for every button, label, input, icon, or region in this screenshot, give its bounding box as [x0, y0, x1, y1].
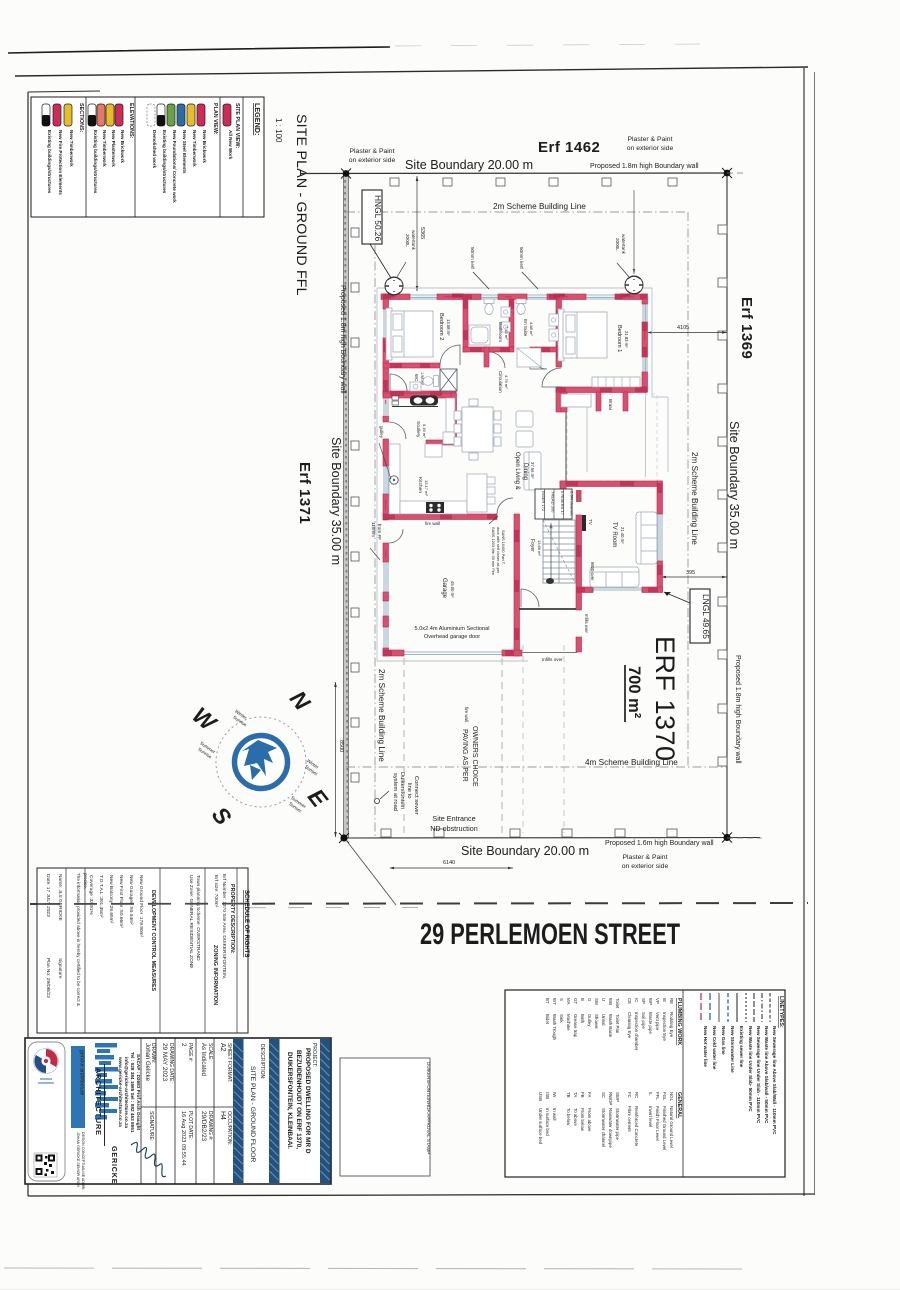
- svg-text:Johan Gelicke: Johan Gelicke: [144, 1043, 150, 1082]
- svg-text:PAVING AS PER: PAVING AS PER: [461, 729, 468, 782]
- svg-text:Scullery: Scullery: [416, 421, 421, 438]
- svg-text:37.56 m²: 37.56 m²: [530, 462, 535, 479]
- svg-text:LNGL 49.65: LNGL 49.65: [701, 594, 711, 639]
- svg-text:Urinal: Urinal: [601, 1014, 606, 1025]
- svg-text:FGL: FGL: [662, 1092, 667, 1101]
- svg-text:Proposed 1.8m high Boundary wa: Proposed 1.8m high Boundary wall: [590, 163, 699, 170]
- svg-text:2: 2: [180, 1043, 187, 1047]
- svg-text:ND obstruction: ND obstruction: [430, 824, 478, 833]
- svg-text:Tel : 028 384 1685 Sel : 082: Tel : 028 384 1685 Sel : 082 453 8551: [130, 1052, 135, 1133]
- svg-text:Plan No: 29/DB/23: Plan No: 29/DB/23: [45, 958, 51, 998]
- svg-text:Finished Ground Level: Finished Ground Level: [662, 1106, 667, 1150]
- svg-text:on exterior side: on exterior side: [622, 863, 669, 870]
- svg-text:Sink: Sink: [559, 1014, 564, 1023]
- svg-text:Rainwater downpipe: Rainwater downpipe: [608, 1108, 613, 1148]
- svg-text:PLAN VIEW:: PLAN VIEW:: [212, 103, 218, 135]
- svg-text:ELEVATIONS:: ELEVATIONS:: [128, 103, 134, 139]
- svg-text:PROPERTY DESCRIPTION:: PROPERTY DESCRIPTION:: [229, 884, 235, 954]
- svg-text:BEZUIDENHOUDT ON ERF 1370,: BEZUIDENHOUDT ON ERF 1370,: [295, 1050, 302, 1149]
- svg-text:New Cold water line: New Cold water line: [712, 1026, 717, 1070]
- svg-text:Name: JLS GERICKE: Name: JLS GERICKE: [57, 874, 63, 921]
- svg-text:Stormwater channel: Stormwater channel: [601, 1108, 606, 1147]
- svg-text:RWDP: RWDP: [608, 1092, 613, 1105]
- svg-text:Waste pipe: Waste pipe: [648, 1012, 653, 1034]
- svg-text:system at road: system at road: [392, 773, 398, 811]
- svg-text:8500: 8500: [338, 740, 344, 752]
- svg-text:BT: BT: [545, 998, 550, 1004]
- svg-text:New Sewerage line Under Slab -: New Sewerage line Under Slab - 110mm PVC: [756, 1026, 761, 1124]
- svg-text:New Plasterwork: New Plasterwork: [111, 130, 116, 167]
- svg-text:DUIKERSFONTEIN, KLEINBAAI.: DUIKERSFONTEIN, KLEINBAAI.: [286, 1052, 293, 1149]
- svg-text:TV Room: TV Room: [611, 522, 617, 547]
- svg-text:Site Boundary 20.00 m: Site Boundary 20.00 m: [405, 158, 533, 172]
- svg-text:Plaster & Paint: Plaster & Paint: [350, 148, 395, 155]
- svg-text:From above: From above: [587, 1108, 592, 1132]
- svg-text:New Fire Protection Elements: New Fire Protection Elements: [58, 130, 63, 195]
- svg-text:G: G: [587, 998, 592, 1002]
- svg-text:Kitchen: Kitchen: [417, 477, 423, 493]
- svg-text:TA: TA: [573, 1092, 578, 1097]
- svg-text:4105: 4105: [677, 325, 689, 331]
- svg-text:SANS 10400 Part T.: SANS 10400 Part T.: [501, 530, 506, 565]
- svg-text:Infills over: Infills over: [542, 657, 563, 662]
- svg-text:LINETYPES:: LINETYPES:: [778, 996, 784, 1028]
- svg-text:Existing buildings/structures: Existing buildings/structures: [93, 130, 98, 194]
- svg-text:Plaster & Paint: Plaster & Paint: [623, 854, 668, 861]
- svg-text:45.00 m²: 45.00 m²: [450, 581, 455, 598]
- svg-text:SECTIONS:: SECTIONS:: [78, 103, 84, 133]
- svg-text:Toilet Pan: Toilet Pan: [615, 1014, 620, 1034]
- svg-text:Grease trap: Grease trap: [573, 1014, 578, 1038]
- svg-text:4.79 m²: 4.79 m²: [504, 375, 509, 389]
- svg-text:To above: To above: [573, 1108, 578, 1126]
- svg-text:16 Aug 2023 09:55:44: 16 Aug 2023 09:55:44: [180, 1111, 186, 1166]
- svg-text:MA: MA: [566, 998, 571, 1005]
- svg-text:on exterior side: on exterior side: [349, 157, 396, 164]
- svg-text:B: B: [580, 998, 585, 1001]
- svg-text:13.58 m²: 13.58 m²: [446, 319, 451, 336]
- svg-text:New First Floor: New First Floor :50.66m²: [118, 875, 124, 928]
- svg-text:Date: 17 JULY 2023: Date: 17 JULY 2023: [45, 874, 51, 917]
- svg-text:50mm kerf: 50mm kerf: [470, 247, 475, 269]
- svg-text:New Foundations/ Concrete work: New Foundations/ Concrete work: [172, 130, 177, 203]
- svg-text:The information provided above: The information provided above is hereby…: [76, 873, 81, 1006]
- svg-text:Infills over: Infills over: [584, 614, 589, 633]
- svg-text:395: 395: [686, 570, 695, 576]
- svg-text:In wall: In wall: [552, 1108, 557, 1120]
- svg-text:New Waste line Above Slab/wall: New Waste line Above Slab/wall - 50mm PV…: [764, 1026, 769, 1124]
- svg-text:ISB: ISB: [545, 1092, 550, 1099]
- svg-text:Bedroom 2: Bedroom 2: [438, 313, 444, 340]
- svg-text:GT: GT: [573, 998, 578, 1004]
- svg-text:Stormwater pipe: Stormwater pipe: [615, 1108, 620, 1141]
- svg-text:CE: CE: [627, 998, 632, 1004]
- svg-text:Existing sewer line: Existing sewer line: [739, 1026, 744, 1068]
- svg-text:E: E: [303, 784, 333, 813]
- svg-text:ARCHITECTURE: ARCHITECTURE: [94, 1068, 103, 1136]
- svg-text:Existing buildings/structures: Existing buildings/structures: [47, 130, 52, 194]
- svg-text:Shower: Shower: [594, 1014, 599, 1029]
- svg-text:PROPOSED DWELLING FOR MR D: PROPOSED DWELLING FOR MR D: [304, 1048, 311, 1154]
- svg-text:SP: SP: [641, 998, 646, 1004]
- svg-text:DEVELOPMENT CONTROL MEASURES: DEVELOPMENT CONTROL MEASURES: [150, 890, 156, 992]
- svg-text:line to: line to: [406, 783, 412, 798]
- svg-text:RISER 172: RISER 172: [541, 491, 546, 512]
- svg-text:Erf size: 700m²: Erf size: 700m²: [213, 875, 219, 908]
- svg-text:Erf 1371: Erf 1371: [296, 462, 313, 524]
- svg-text:Fibre cement: Fibre cement: [627, 1106, 632, 1132]
- svg-text:Dining: Dining: [522, 463, 528, 480]
- svg-text:precise.: precise.: [83, 873, 88, 889]
- svg-text:SIGNATURE:: SIGNATURE:: [148, 1111, 154, 1141]
- svg-text:NGL: NGL: [669, 1092, 674, 1102]
- svg-text:Wash Basin: Wash Basin: [608, 1014, 613, 1038]
- svg-text:www.gericke-architecture.co.za: www.gericke-architecture.co.za: [118, 1056, 123, 1127]
- svg-text:700 m²: 700 m²: [625, 666, 643, 719]
- svg-text:WB: WB: [608, 998, 613, 1005]
- svg-text:Town planning Scheme: OVERS: Town planning Scheme: OVERSTRAND: [195, 875, 201, 961]
- svg-text:Bathroom: Bathroom: [498, 322, 503, 342]
- svg-text:2m Scheme Building Line: 2m Scheme Building Line: [690, 452, 699, 545]
- svg-text:Inspection Eye: Inspection Eye: [662, 1012, 667, 1041]
- svg-text:Soil pipe: Soil pipe: [641, 1012, 646, 1029]
- svg-text:9500 over: 9500 over: [590, 562, 595, 581]
- svg-text:SITE PLAN VIEW:: SITE PLAN VIEW:: [234, 103, 240, 148]
- svg-text:Under surface bed: Under surface bed: [538, 1108, 543, 1145]
- svg-text:N: N: [285, 686, 316, 715]
- svg-text:SITE PLAN - GROUND FFL: SITE PLAN - GROUND FFL: [293, 114, 309, 296]
- svg-text:New Garages: New Garages :50.04m²: [128, 875, 134, 925]
- svg-text:S: S: [559, 998, 564, 1001]
- svg-text:Bedroom 1: Bedroom 1: [616, 325, 622, 352]
- svg-text:4.88 m²: 4.88 m²: [529, 322, 534, 336]
- svg-text:110mm: 110mm: [371, 522, 376, 537]
- svg-text:HNGL 50.26: HNGL 50.26: [373, 195, 383, 242]
- svg-text:Natural Ground Level: Natural Ground Level: [669, 1106, 674, 1148]
- svg-text:2000L: 2000L: [615, 238, 620, 251]
- svg-text:Inspection chamber: Inspection chamber: [634, 1012, 639, 1051]
- svg-text:21.83 m²: 21.83 m²: [624, 331, 629, 348]
- svg-text:New Brickwork: New Brickwork: [202, 130, 207, 163]
- svg-text:GENERAL: GENERAL: [676, 1092, 682, 1119]
- svg-text:W: W: [188, 702, 223, 737]
- svg-text:Open Living &: Open Living &: [514, 452, 520, 490]
- svg-text:Foyer: Foyer: [529, 539, 535, 552]
- svg-text:Gulley: Gulley: [587, 1014, 592, 1027]
- svg-text:New Timberwork: New Timberwork: [192, 130, 197, 167]
- svg-text:New Steel Elements: New Steel Elements: [182, 130, 187, 174]
- svg-text:TB: TB: [566, 1092, 571, 1098]
- svg-text:Use Zone: GENERAL RESIDENTIAL: Use Zone: GENERAL RESIDENTIAL ZONE: [188, 875, 194, 968]
- svg-text:TV: TV: [588, 519, 593, 526]
- svg-text:WP: WP: [648, 998, 653, 1005]
- svg-text:RE: RE: [669, 998, 674, 1004]
- svg-text:New Gas line: New Gas line: [721, 1026, 726, 1055]
- svg-text:from FF: from FF: [377, 524, 382, 540]
- svg-text:29 MAY 2023: 29 MAY 2023: [161, 1043, 168, 1082]
- svg-text:IC: IC: [634, 998, 639, 1002]
- svg-text:New Brickwork: New Brickwork: [120, 130, 125, 163]
- svg-text:New Stormwater Line: New Stormwater Line: [730, 1026, 735, 1073]
- svg-text:FB: FB: [580, 1092, 585, 1098]
- svg-text:Proposed 1.8m high Boundary wa: Proposed 1.8m high Boundary wall: [734, 655, 741, 764]
- svg-text:6140: 6140: [443, 860, 455, 866]
- svg-text:50mm kerf: 50mm kerf: [519, 247, 524, 269]
- svg-text:SITE PLAN - GROUND FLOOR: SITE PLAN - GROUND FLOOR: [249, 1066, 256, 1162]
- svg-text:info@gericke-architecture.co.z: info@gericke-architecture.co.za: [124, 1057, 129, 1128]
- svg-text:Erf Number: 1370 Site Area:: Erf Number: 1370 Site Area: DUIKERSFONTE…: [221, 874, 227, 979]
- svg-text:H4: H4: [219, 1111, 226, 1120]
- svg-text:Demolished work: Demolished work: [152, 130, 157, 168]
- svg-text:DESCRIPTION:: DESCRIPTION:: [259, 1044, 265, 1080]
- svg-text:1 : 100: 1 : 100: [274, 118, 283, 143]
- svg-text:WT: WT: [552, 998, 557, 1005]
- svg-text:2000L: 2000L: [405, 234, 410, 247]
- svg-text:New Sewerage line Above Slab/W: New Sewerage line Above Slab/Wall - 110m…: [772, 1026, 777, 1135]
- svg-text:DESIGN CONCEPTUALISE ADMIN: DESIGN CONCEPTUALISE ADMIN: [81, 1132, 85, 1190]
- svg-text:Toilet: Toilet: [615, 998, 620, 1009]
- svg-text:JOHAN GERICKE SENIOR ARCH: JOHAN GERICKE SENIOR ARCH: [76, 1132, 80, 1188]
- svg-text:Garage: Garage: [441, 578, 447, 599]
- svg-text:SABS 1203 Min 30 min Fire: SABS 1203 Min 30 min Fire: [491, 527, 496, 575]
- svg-text:VP: VP: [655, 998, 660, 1004]
- svg-text:Bidet: Bidet: [545, 1014, 550, 1025]
- svg-text:DUIKERSFONTEINHOA APPROVAL STA: DUIKERSFONTEINHOA APPROVAL STAMP: [426, 1062, 431, 1154]
- svg-text:SW: SW: [594, 998, 599, 1006]
- svg-text:1.98 m²: 1.98 m²: [420, 372, 424, 386]
- svg-text:Site Boundary 35.00 m: Site Boundary 35.00 m: [329, 437, 343, 565]
- svg-text:7.43 m²: 7.43 m²: [504, 326, 509, 340]
- svg-text:Invert level: Invert level: [648, 1106, 653, 1127]
- svg-text:SWP: SWP: [615, 1092, 620, 1102]
- svg-text:U: U: [601, 998, 606, 1001]
- svg-text:Braai: Braai: [608, 399, 613, 410]
- svg-text:Existing buildings/structures: Existing buildings/structures: [162, 130, 167, 194]
- svg-text:fire wall: fire wall: [464, 707, 469, 722]
- svg-text:gulley: gulley: [379, 426, 384, 439]
- svg-text:on exterior side: on exterior side: [627, 145, 674, 152]
- svg-text:New Hot water line: New Hot water line: [703, 1026, 708, 1067]
- svg-text:Erf 1462: Erf 1462: [538, 139, 600, 156]
- svg-text:RC: RC: [634, 1092, 639, 1098]
- svg-text:Wash Trough: Wash Trough: [552, 1014, 557, 1041]
- svg-text:Bath: Bath: [580, 1014, 585, 1024]
- svg-text:2m Scheme Building Line: 2m Scheme Building Line: [493, 202, 586, 211]
- svg-text:5.0x2.4m Aluminium Sectional: 5.0x2.4m Aluminium Sectional: [415, 626, 490, 632]
- svg-text:# RISERS 17: # RISERS 17: [560, 491, 565, 516]
- svg-text:29 PERLEMOEN STREET: 29 PERLEMOEN STREET: [420, 918, 680, 951]
- svg-text:Plaster & Paint: Plaster & Paint: [628, 136, 673, 143]
- svg-text:En Suite: En Suite: [523, 319, 528, 337]
- svg-text:5.49 m²: 5.49 m²: [422, 424, 427, 438]
- svg-text:PLUMBING WORK: PLUMBING WORK: [676, 998, 682, 1045]
- svg-text:Erf 1369: Erf 1369: [738, 297, 755, 359]
- svg-text:As Indicated: As Indicated: [200, 1043, 206, 1076]
- svg-text:Site Boundary 20.00 m: Site Boundary 20.00 m: [461, 844, 589, 858]
- svg-text:29/DB2/23: 29/DB2/23: [200, 1111, 207, 1142]
- svg-text:S: S: [207, 802, 237, 831]
- svg-text:Reinforced Concrete: Reinforced Concrete: [634, 1106, 639, 1147]
- svg-text:Cleaning Eye: Cleaning Eye: [627, 1012, 632, 1039]
- svg-text:watertank: watertank: [411, 230, 416, 251]
- svg-text:To below: To below: [566, 1108, 571, 1126]
- svg-text:Signature: Signature: [57, 958, 63, 979]
- svg-text:T.O.T.A.L: T.O.T.A.L :301.45m²: [98, 875, 104, 918]
- svg-text:From below: From below: [580, 1108, 585, 1132]
- svg-text:New Timberwork: New Timberwork: [69, 130, 74, 167]
- svg-text:All New Work: All New Work: [228, 130, 233, 160]
- svg-text:SC: SC: [601, 1092, 606, 1098]
- svg-text:2m Scheme Building Line: 2m Scheme Building Line: [377, 669, 386, 762]
- svg-text:FA: FA: [587, 1092, 592, 1097]
- svg-text:13.17 m²: 13.17 m²: [424, 480, 429, 496]
- svg-text:Rodding Eye: Rodding Eye: [669, 1012, 674, 1038]
- svg-text:5365: 5365: [419, 227, 425, 239]
- svg-text:door with self closer as per: door with self closer as per: [496, 527, 501, 574]
- svg-text:New Ground Floor :: New Ground Floor :179.90m²: [138, 875, 144, 938]
- svg-text:IL: IL: [648, 1092, 653, 1096]
- svg-text:Overhead garage door: Overhead garage door: [424, 634, 480, 640]
- svg-text:Proposed 1.8m high Boundary wa: Proposed 1.8m high Boundary wall: [339, 285, 346, 394]
- svg-text:Proposed 1.6m high Boundary wa: Proposed 1.6m high Boundary wall: [605, 840, 714, 847]
- svg-text:USB: USB: [538, 1092, 543, 1101]
- svg-text:13.66 m²: 13.66 m²: [537, 540, 542, 556]
- svg-text:SACAP : D2683 Prof Arch Draugh: SACAP : D2683 Prof Arch Draught: [136, 1054, 141, 1130]
- svg-text:LEGEND:: LEGEND:: [253, 103, 262, 135]
- svg-text:PLOT DATE:: PLOT DATE:: [187, 1111, 193, 1140]
- svg-text:GERICKE: GERICKE: [110, 1146, 119, 1184]
- svg-text:OWNERS CHOICE: OWNERS CHOICE: [471, 726, 478, 787]
- svg-text:Finish Floor Level: Finish Floor Level: [655, 1106, 660, 1141]
- svg-text:A2: A2: [219, 1043, 226, 1052]
- svg-text:gericke architecture: gericke architecture: [79, 1050, 85, 1095]
- svg-text:2.6M clearanc: 2.6M clearanc: [570, 491, 575, 516]
- svg-text:ZONING INFORMATION: ZONING INFORMATION: [212, 945, 218, 1005]
- svg-text:Site Boundary 35.00 m: Site Boundary 35.00 m: [727, 421, 741, 549]
- svg-text:WC: WC: [414, 374, 419, 381]
- svg-text:New Timberwork: New Timberwork: [102, 130, 107, 167]
- svg-text:FFL: FFL: [655, 1092, 660, 1100]
- svg-text:TREAD 300: TREAD 300: [551, 491, 556, 513]
- svg-text:Connect sewer: Connect sewer: [413, 776, 419, 815]
- svg-text:FC: FC: [627, 1092, 632, 1098]
- svg-text:Site Entrance: Site Entrance: [432, 814, 475, 823]
- svg-text:watertank: watertank: [621, 234, 626, 255]
- svg-text:SCALE:: SCALE:: [207, 1043, 213, 1061]
- svg-text:Vent pipe: Vent pipe: [655, 1012, 660, 1031]
- svg-text:IE: IE: [662, 998, 667, 1002]
- svg-text:21.40 m²: 21.40 m²: [620, 527, 625, 544]
- svg-text:IW: IW: [552, 1092, 557, 1098]
- svg-text:Circulation: Circulation: [498, 371, 503, 393]
- svg-text:New Waste line Under Slab- 50m: New Waste line Under Slab- 50mm PVC: [748, 1026, 753, 1112]
- svg-text:Machine: Machine: [566, 1014, 571, 1031]
- svg-text:New Balcony: New Balcony :26.65m²: [108, 875, 114, 924]
- svg-text:In surface bed: In surface bed: [545, 1108, 550, 1136]
- svg-text:SCHEDULE OF RIGHTS: SCHEDULE OF RIGHTS: [243, 890, 249, 957]
- svg-text:ERF 1370: ERF 1370: [650, 636, 680, 762]
- svg-text:fire wall: fire wall: [425, 521, 440, 526]
